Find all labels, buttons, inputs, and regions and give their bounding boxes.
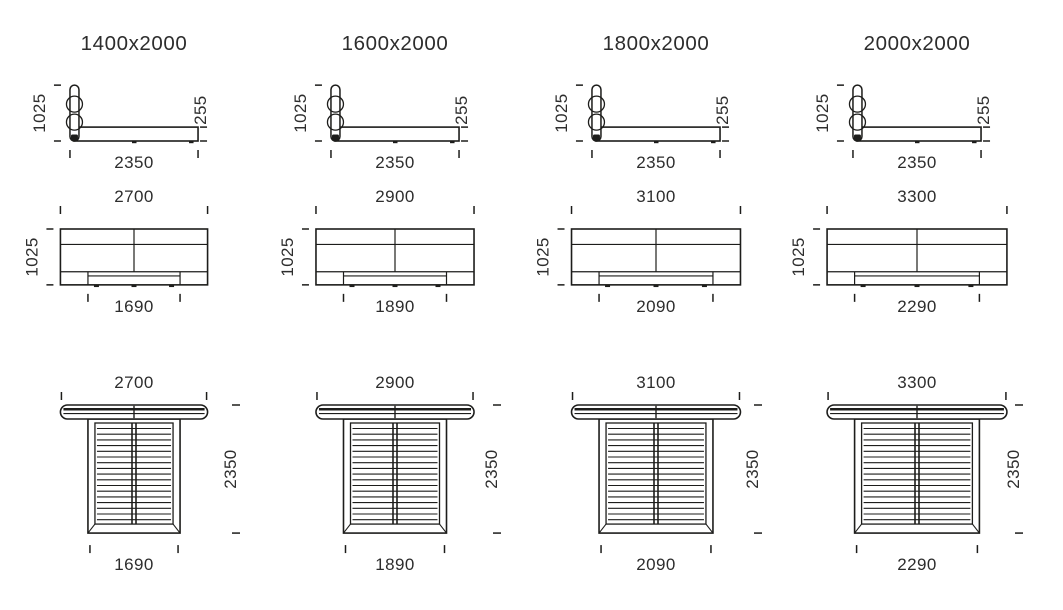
headboard-foot <box>71 135 78 142</box>
dimension-width: 2900 <box>375 373 414 392</box>
bed-foot <box>968 285 973 287</box>
bed-foot <box>702 285 707 287</box>
bed-foot <box>349 285 354 287</box>
headboard-side <box>853 85 862 141</box>
size-title: 1800x2000 <box>530 32 782 56</box>
dimension-base-width: 2290 <box>897 555 936 574</box>
dimension-height: 1025 <box>30 93 49 132</box>
dimension-base-width: 1890 <box>375 555 414 574</box>
dimension-base-height: 255 <box>452 95 471 125</box>
front-view-drawing: 330010252290 <box>791 186 1043 318</box>
dimension-length: 2350 <box>636 153 675 172</box>
dimension-width: 3100 <box>636 187 675 206</box>
dimension-length: 2350 <box>114 153 153 172</box>
dimension-length: 2350 <box>375 153 414 172</box>
size-title: 1400x2000 <box>8 32 260 56</box>
dimension-width: 3300 <box>897 373 936 392</box>
top-view-drawing: 330023502290 <box>791 318 1043 610</box>
size-column: 2000x2000 10252552350 330010252290 33002… <box>791 0 1043 610</box>
size-column: 1600x2000 10252552350 290010251890 29002… <box>269 0 521 610</box>
dimension-width: 3100 <box>636 373 675 392</box>
dimension-width: 2700 <box>114 187 153 206</box>
bed-foot <box>450 141 455 143</box>
bed-frame-outer <box>855 419 980 533</box>
bed-foot <box>711 141 716 143</box>
dimension-height: 1025 <box>291 93 310 132</box>
bed-foot <box>972 141 977 143</box>
bed-dimensions-sheet: 1400x2000 10252552350 270010251690 27002… <box>0 0 1063 610</box>
size-title: 1600x2000 <box>269 32 521 56</box>
dimension-base-width: 2090 <box>636 555 675 574</box>
side-view-drawing: 10252552350 <box>269 62 521 182</box>
bed-foot <box>915 285 920 287</box>
dimension-depth: 2350 <box>221 449 240 488</box>
size-title: 2000x2000 <box>791 32 1043 56</box>
side-view-drawing: 10252552350 <box>530 62 782 182</box>
headboard-side <box>70 85 79 141</box>
dimension-base-width: 2290 <box>897 297 936 316</box>
bed-foot <box>436 285 441 287</box>
size-column: 1400x2000 10252552350 270010251690 27002… <box>8 0 260 610</box>
headboard-side <box>331 85 340 141</box>
front-view-drawing: 270010251690 <box>8 186 260 318</box>
side-view-drawing: 10252552350 <box>791 62 1043 182</box>
dimension-width: 2700 <box>114 373 153 392</box>
dimension-width: 3300 <box>897 187 936 206</box>
bed-foot <box>654 285 659 287</box>
side-view-drawing: 10252552350 <box>8 62 260 182</box>
dimension-height: 1025 <box>22 237 41 276</box>
dimension-base-height: 255 <box>974 95 993 125</box>
dimension-width: 2900 <box>375 187 414 206</box>
dimension-depth: 2350 <box>482 449 501 488</box>
bed-foot <box>132 141 137 143</box>
top-view-drawing: 270023501690 <box>8 318 260 610</box>
bed-foot <box>94 285 99 287</box>
top-view-drawing: 290023501890 <box>269 318 521 610</box>
bed-foot <box>861 285 866 287</box>
bed-foot <box>915 141 920 143</box>
dimension-base-height: 255 <box>191 95 210 125</box>
front-view-drawing: 310010252090 <box>530 186 782 318</box>
dimension-length: 2350 <box>897 153 936 172</box>
bed-foot <box>393 141 398 143</box>
dimension-height: 1025 <box>791 237 808 276</box>
bed-frame-outer <box>343 419 446 533</box>
bed-foot <box>654 141 659 143</box>
bed-foot <box>189 141 194 143</box>
bed-foot <box>132 285 137 287</box>
bed-base-side <box>335 127 459 141</box>
bed-base-side <box>74 127 198 141</box>
dimension-base-width: 1890 <box>375 297 414 316</box>
dimension-height: 1025 <box>534 237 553 276</box>
headboard-foot <box>593 135 600 142</box>
headboard-foot <box>854 135 861 142</box>
headboard-foot <box>332 135 339 142</box>
bed-base-side <box>857 127 981 141</box>
dimension-depth: 2350 <box>743 449 762 488</box>
bed-frame-outer <box>88 419 180 533</box>
headboard-side <box>592 85 601 141</box>
bed-foot <box>169 285 174 287</box>
top-view-drawing: 310023502090 <box>530 318 782 610</box>
dimension-height: 1025 <box>813 93 832 132</box>
dimension-base-width: 1690 <box>114 555 153 574</box>
bed-foot <box>605 285 610 287</box>
dimension-height: 1025 <box>278 237 297 276</box>
bed-base-side <box>596 127 720 141</box>
front-view-drawing: 290010251890 <box>269 186 521 318</box>
size-column: 1800x2000 10252552350 310010252090 31002… <box>530 0 782 610</box>
dimension-base-width: 1690 <box>114 297 153 316</box>
bed-frame-outer <box>599 419 713 533</box>
dimension-base-width: 2090 <box>636 297 675 316</box>
bed-foot <box>393 285 398 287</box>
dimension-base-height: 255 <box>713 95 732 125</box>
dimension-height: 1025 <box>552 93 571 132</box>
dimension-depth: 2350 <box>1004 449 1023 488</box>
